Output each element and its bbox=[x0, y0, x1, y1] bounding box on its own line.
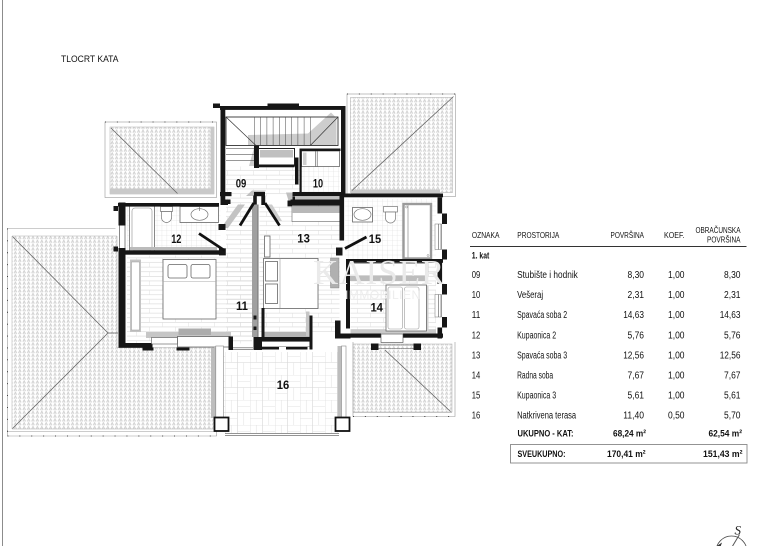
svg-text:1,00: 1,00 bbox=[668, 371, 685, 382]
svg-text:68,24 m²: 68,24 m² bbox=[613, 429, 646, 439]
svg-text:11,40: 11,40 bbox=[623, 411, 644, 422]
svg-text:1,00: 1,00 bbox=[668, 310, 685, 321]
svg-text:0,50: 0,50 bbox=[668, 411, 685, 422]
svg-text:14,63: 14,63 bbox=[720, 310, 741, 321]
svg-text:12: 12 bbox=[171, 232, 181, 246]
svg-text:2,31: 2,31 bbox=[724, 290, 741, 301]
svg-text:8,30: 8,30 bbox=[724, 270, 741, 281]
svg-text:1,00: 1,00 bbox=[668, 290, 685, 301]
svg-text:OZNAKA: OZNAKA bbox=[472, 230, 500, 240]
svg-text:Radna soba: Radna soba bbox=[517, 371, 553, 382]
svg-text:IMMOBILIEN: IMMOBILIEN bbox=[345, 288, 421, 302]
svg-text:5,61: 5,61 bbox=[724, 391, 741, 402]
svg-text:Kupaonica 3: Kupaonica 3 bbox=[517, 391, 556, 402]
svg-text:Spavaća soba 2: Spavaća soba 2 bbox=[517, 310, 567, 321]
svg-text:09: 09 bbox=[236, 176, 247, 190]
svg-text:8,30: 8,30 bbox=[628, 270, 645, 281]
svg-text:12,56: 12,56 bbox=[720, 350, 741, 361]
svg-text:16: 16 bbox=[472, 411, 481, 422]
svg-text:15: 15 bbox=[369, 232, 382, 246]
svg-text:5,70: 5,70 bbox=[724, 411, 741, 422]
svg-text:5,61: 5,61 bbox=[628, 391, 645, 402]
svg-text:SVEUKUPNO:: SVEUKUPNO: bbox=[518, 449, 566, 459]
svg-text:KOEF.: KOEF. bbox=[664, 230, 685, 240]
svg-text:Stubište i hodnik: Stubište i hodnik bbox=[517, 270, 578, 281]
svg-text:S: S bbox=[735, 523, 742, 538]
svg-text:12,56: 12,56 bbox=[623, 350, 644, 361]
svg-text:UKUPNO - KAT:: UKUPNO - KAT: bbox=[518, 429, 574, 439]
svg-text:151,43 m²: 151,43 m² bbox=[703, 449, 743, 459]
svg-text:7,67: 7,67 bbox=[724, 371, 741, 382]
svg-text:10: 10 bbox=[472, 290, 481, 301]
svg-text:62,54 m²: 62,54 m² bbox=[709, 429, 743, 439]
svg-text:KAISER: KAISER bbox=[313, 253, 445, 292]
svg-text:POVRŠINA: POVRŠINA bbox=[707, 234, 741, 244]
svg-text:1,00: 1,00 bbox=[668, 270, 685, 281]
svg-text:14: 14 bbox=[370, 300, 383, 314]
svg-text:1,00: 1,00 bbox=[668, 330, 685, 341]
svg-text:Spavaća soba 3: Spavaća soba 3 bbox=[517, 350, 567, 361]
svg-text:16: 16 bbox=[277, 378, 290, 392]
svg-text:Natkrivena terasa: Natkrivena terasa bbox=[517, 411, 576, 422]
svg-text:Vešeraj: Vešeraj bbox=[517, 290, 543, 301]
svg-text:13: 13 bbox=[297, 232, 310, 246]
svg-text:TLOCRT KATA: TLOCRT KATA bbox=[61, 54, 119, 64]
svg-text:09: 09 bbox=[472, 270, 481, 281]
svg-text:1,00: 1,00 bbox=[668, 391, 685, 402]
svg-text:7,67: 7,67 bbox=[628, 371, 645, 382]
svg-text:PROSTORIJA: PROSTORIJA bbox=[517, 230, 559, 240]
svg-text:13: 13 bbox=[472, 350, 481, 361]
svg-text:11: 11 bbox=[236, 299, 248, 313]
svg-text:14: 14 bbox=[472, 371, 481, 382]
svg-text:11: 11 bbox=[472, 310, 481, 321]
svg-text:10: 10 bbox=[313, 176, 323, 190]
svg-text:1. kat: 1. kat bbox=[472, 251, 490, 261]
svg-text:5,76: 5,76 bbox=[724, 330, 741, 341]
svg-text:1,00: 1,00 bbox=[668, 350, 685, 361]
svg-text:12: 12 bbox=[472, 330, 481, 341]
svg-text:5,76: 5,76 bbox=[628, 330, 645, 341]
svg-text:170,41 m²: 170,41 m² bbox=[607, 449, 646, 459]
svg-text:POVRŠINA: POVRŠINA bbox=[611, 230, 645, 240]
svg-text:Kupaonica 2: Kupaonica 2 bbox=[517, 330, 556, 341]
svg-text:15: 15 bbox=[472, 391, 481, 402]
svg-text:14,63: 14,63 bbox=[623, 310, 644, 321]
svg-text:2,31: 2,31 bbox=[628, 290, 645, 301]
